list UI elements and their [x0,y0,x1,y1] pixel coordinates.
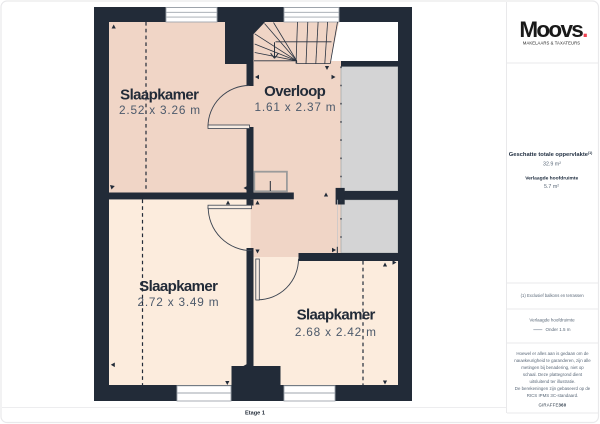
svg-text:Verlaagde hoofdruimte: Verlaagde hoofdruimte [529,318,575,323]
svg-text:32.9 m²: 32.9 m² [543,161,561,167]
svg-text:Slaapkamer: Slaapkamer [120,87,199,104]
svg-text:2.52 x 3.26 m: 2.52 x 3.26 m [119,103,201,117]
svg-text:Slaapkamer: Slaapkamer [297,307,376,324]
svg-text:(1) Exclusief balkons en terra: (1) Exclusief balkons en terrassen [521,293,585,298]
svg-text:Moovs.: Moovs. [519,17,587,42]
svg-text:RICS IPMS 3C-standaard.: RICS IPMS 3C-standaard. [527,393,579,398]
svg-text:5.7 m²: 5.7 m² [544,184,559,190]
svg-text:nauwkeurigheid te garanderen,: nauwkeurigheid te garanderen, zijn alle [514,358,591,363]
svg-text:2.68 x 2.42 m: 2.68 x 2.42 m [295,325,377,339]
svg-text:MAKELAARS & TAXATEURS: MAKELAARS & TAXATEURS [523,41,580,46]
svg-text:Etage 1: Etage 1 [245,410,265,416]
svg-text:Slaapkamer: Slaapkamer [139,278,218,295]
svg-text:uitsluitend ter illustratie.: uitsluitend ter illustratie. [530,379,576,384]
svg-text:GIRAFFE360: GIRAFFE360 [538,403,566,408]
svg-text:1.61 x 2.37 m: 1.61 x 2.37 m [255,100,337,114]
svg-text:metingen bij benadering, niet: metingen bij benadering, niet op [521,365,584,370]
svg-text:Geschatte totale oppervlakte(1: Geschatte totale oppervlakte(1) [509,151,593,158]
svg-text:Overloop: Overloop [264,83,325,100]
svg-text:Onder 1.5 m: Onder 1.5 m [545,327,570,332]
svg-text:schaal. Deze plattegrond dient: schaal. Deze plattegrond dient [523,372,583,377]
svg-text:2.72 x 3.49 m: 2.72 x 3.49 m [137,295,219,309]
svg-text:Verlaagde hoofdruimte: Verlaagde hoofdruimte [525,176,578,182]
svg-text:Hoewel er alles aan is gedaan: Hoewel er alles aan is gedaan om de [516,351,589,356]
svg-text:De berekeningen zijn gebaseerd: De berekeningen zijn gebaseerd op de [515,386,591,391]
